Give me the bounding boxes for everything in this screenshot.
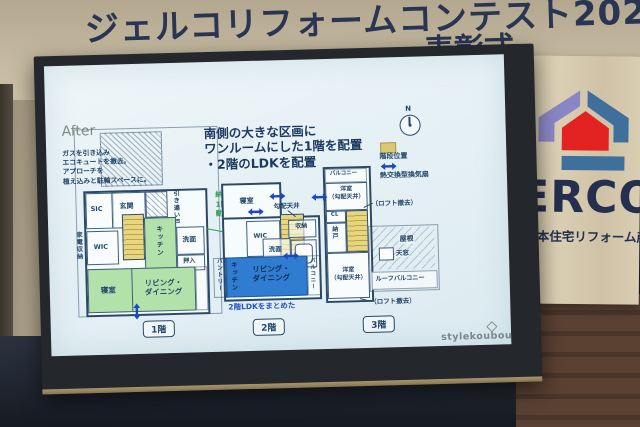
compass-icon	[399, 115, 421, 137]
floor2-fan-arrow-right-icon	[283, 252, 299, 260]
legend-fan-label: 熱交換型換気扇	[380, 170, 429, 180]
floor1-tag-label: 1階	[151, 322, 167, 335]
presentation-slide: After 南側の大きな区画に ワンルームにした1階を配置 ・2階のLDKを配置…	[44, 54, 511, 356]
floor1-appliance-label: 家電収納	[74, 231, 83, 279]
floor1-fan-arrow-icon	[129, 303, 148, 319]
floor3-tag-label: 3階	[371, 317, 387, 330]
watermark: stylekoubou	[441, 330, 511, 343]
floor3-cl-label: CL	[331, 212, 339, 219]
floor2-note-ldk: 2階LDKをまとめた	[228, 301, 295, 312]
floor1-kitchen-label: キッチン	[154, 225, 164, 265]
jerco-house-logo-icon	[536, 82, 631, 173]
floor2-balcony-label: バルコニー	[308, 257, 316, 295]
floor1-wic-label: WIC	[94, 243, 109, 251]
floor3-note-loft-bottom: （ロフト撤去）	[370, 297, 416, 306]
legend-fan-arrow-icon	[381, 162, 397, 170]
floor2-bedroom-label: 寝室	[239, 197, 253, 206]
floor2-pantry-label: パントリー	[214, 258, 222, 302]
slide-heading: 南側の大きな区画に ワンルームにした1階を配置 ・2階のLDKを配置	[204, 122, 363, 172]
floor1-porch	[145, 191, 168, 218]
floor2-living-label: リビング・ ダイニング	[252, 264, 290, 284]
floor1-sic-label: SIC	[91, 205, 103, 213]
floor3-skylight	[379, 247, 394, 260]
floor3-skylight-label: 天窓	[396, 249, 409, 257]
floor2-kitchen-label: キッチン	[229, 261, 238, 293]
projector-screen: After 南側の大きな区画に ワンルームにした1階を配置 ・2階のLDKを配置…	[34, 44, 543, 395]
floor2-storage-label: 収納	[295, 223, 307, 231]
compass-n-label: N	[405, 105, 411, 114]
floor1-veranda	[195, 266, 208, 310]
floor2-tag: 2階	[253, 318, 285, 336]
floor3-nando-label: 納戸	[330, 226, 338, 250]
floor1-living-label: リビング・ ダイニング	[145, 278, 183, 298]
floor1-wash-label: 洗面	[182, 235, 196, 244]
legend-stairs-label: 階段位置	[379, 152, 407, 161]
photo-stage: ジェルコリフォームコンテスト2023 表彰式 JERCO 人 日本住宅リフォーム…	[0, 0, 640, 427]
floor1-note-gas: ガスを引き込み エコキュートを撤去。 アプローチを 植え込みと駐輪スペースに。	[62, 147, 161, 186]
floor3-western-bottom-label: 洋室 （勾配天井）	[330, 266, 366, 283]
floor1-tag: 1階	[143, 320, 175, 338]
floor1-stairs	[122, 214, 145, 261]
floor3-balcony-label: バルコニー	[330, 170, 358, 178]
floor3-roof-label: 屋根	[398, 235, 414, 244]
floor1-bedroom-label: 寝室	[101, 286, 116, 296]
floor1-entrance-label: 玄関	[120, 202, 134, 211]
floor2-wash-label: 洗面	[269, 245, 282, 253]
floor2-tag-label: 2階	[261, 320, 277, 333]
floor3-note-loft-top: （ロフト撤去）	[372, 199, 418, 208]
floor3-western-top-label: 洋室 （勾配天井）	[328, 185, 364, 202]
floor2-note-ceiling: 勾配天井	[274, 202, 300, 211]
floor3-fan-arrow-icon	[311, 193, 327, 201]
floor3-roof-balcony-label: ルーフバルコニー	[376, 274, 425, 283]
floor2-fan-arrow-top-icon	[269, 192, 285, 200]
floor1-oshiire-label: 押入	[183, 257, 196, 265]
floor2-fan-arrow-mid-icon	[248, 208, 264, 216]
floor3-stairs	[346, 210, 369, 253]
floor3-tag: 3階	[363, 315, 395, 333]
venue-wall-left-edge	[0, 84, 13, 376]
